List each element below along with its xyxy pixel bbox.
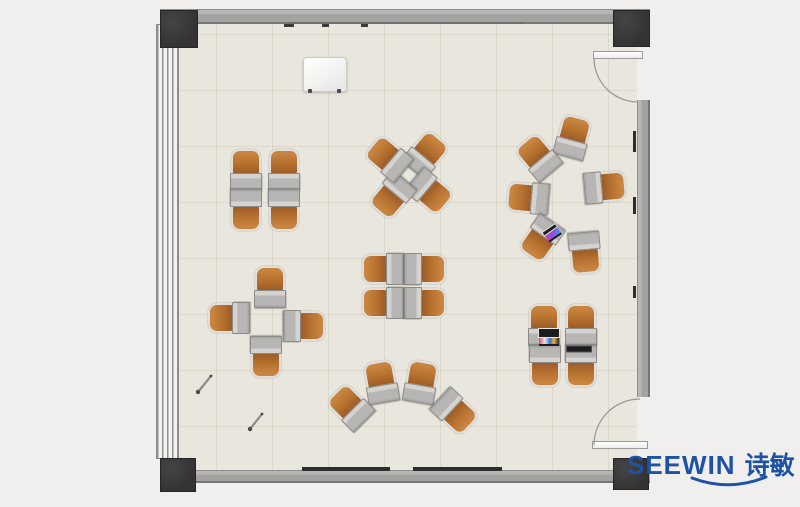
wall-mark [633, 286, 636, 298]
desk [254, 290, 286, 308]
desk-chair-unit [250, 336, 282, 378]
laptop [566, 346, 592, 353]
chair [420, 254, 446, 284]
chair [529, 304, 559, 330]
chair [362, 254, 388, 284]
desk-chair-unit [230, 189, 262, 231]
laptop [538, 328, 560, 346]
wall-segment [160, 470, 650, 483]
wall-mark [322, 24, 329, 27]
chair [208, 303, 234, 333]
column-pillar [613, 10, 650, 47]
wall-mark [633, 131, 636, 152]
wall-mark [302, 467, 390, 471]
desk-chair-unit [268, 149, 300, 191]
floorplan-canvas: SEEWIN 诗敏 [0, 0, 800, 507]
door-leaf [593, 51, 643, 59]
desk-chair-unit [567, 231, 603, 276]
chair [362, 288, 388, 318]
caster-wheel [337, 89, 341, 93]
desk [565, 328, 597, 346]
desk-chair-unit [254, 266, 286, 308]
desk [230, 189, 262, 207]
laptop-screen [538, 328, 560, 338]
desk [250, 336, 282, 354]
chair [299, 311, 325, 341]
wall-mark [633, 197, 636, 214]
desk-chair-unit [230, 149, 262, 191]
desk-chair-unit [404, 253, 446, 285]
desk-chair-unit [208, 302, 250, 334]
wall-segment [637, 100, 650, 397]
podium-whiteboard [303, 57, 347, 92]
desk-chair-unit [362, 253, 404, 285]
wall-mark [284, 24, 294, 27]
desk [404, 287, 422, 319]
desk [567, 231, 600, 252]
chair [530, 361, 560, 387]
desk [404, 253, 422, 285]
desk-chair-unit [404, 287, 446, 319]
desk [583, 171, 604, 204]
chair [420, 288, 446, 318]
wall-mark [361, 24, 368, 27]
desk [529, 345, 561, 363]
desk [232, 302, 250, 334]
desk-chair-unit [565, 304, 597, 346]
desk [386, 287, 404, 319]
chair [566, 304, 596, 330]
caster-wheel [308, 89, 312, 93]
chair [231, 205, 261, 231]
desk [386, 253, 404, 285]
chair [251, 352, 281, 378]
desk-chair-unit [506, 180, 551, 216]
chair [269, 149, 299, 175]
window-wall [156, 24, 179, 459]
column-pillar [160, 458, 196, 492]
wall-mark [413, 467, 502, 471]
chair [255, 266, 285, 292]
brand-swoosh-icon [687, 475, 771, 491]
desk-chair-unit [362, 287, 404, 319]
desk-chair-unit [283, 310, 325, 342]
desk-chair-unit [529, 345, 561, 387]
chair [269, 205, 299, 231]
chair [570, 247, 602, 276]
brand-logo: SEEWIN 诗敏 [627, 452, 795, 479]
desk [283, 310, 301, 342]
desk [268, 189, 300, 207]
chair [566, 361, 596, 387]
column-pillar [160, 10, 198, 48]
desk-chair-unit [583, 169, 628, 205]
chair [231, 149, 261, 175]
door-leaf [592, 441, 648, 449]
desk-chair-unit [268, 189, 300, 231]
desk [530, 182, 551, 215]
laptop-keyboard [539, 338, 559, 346]
